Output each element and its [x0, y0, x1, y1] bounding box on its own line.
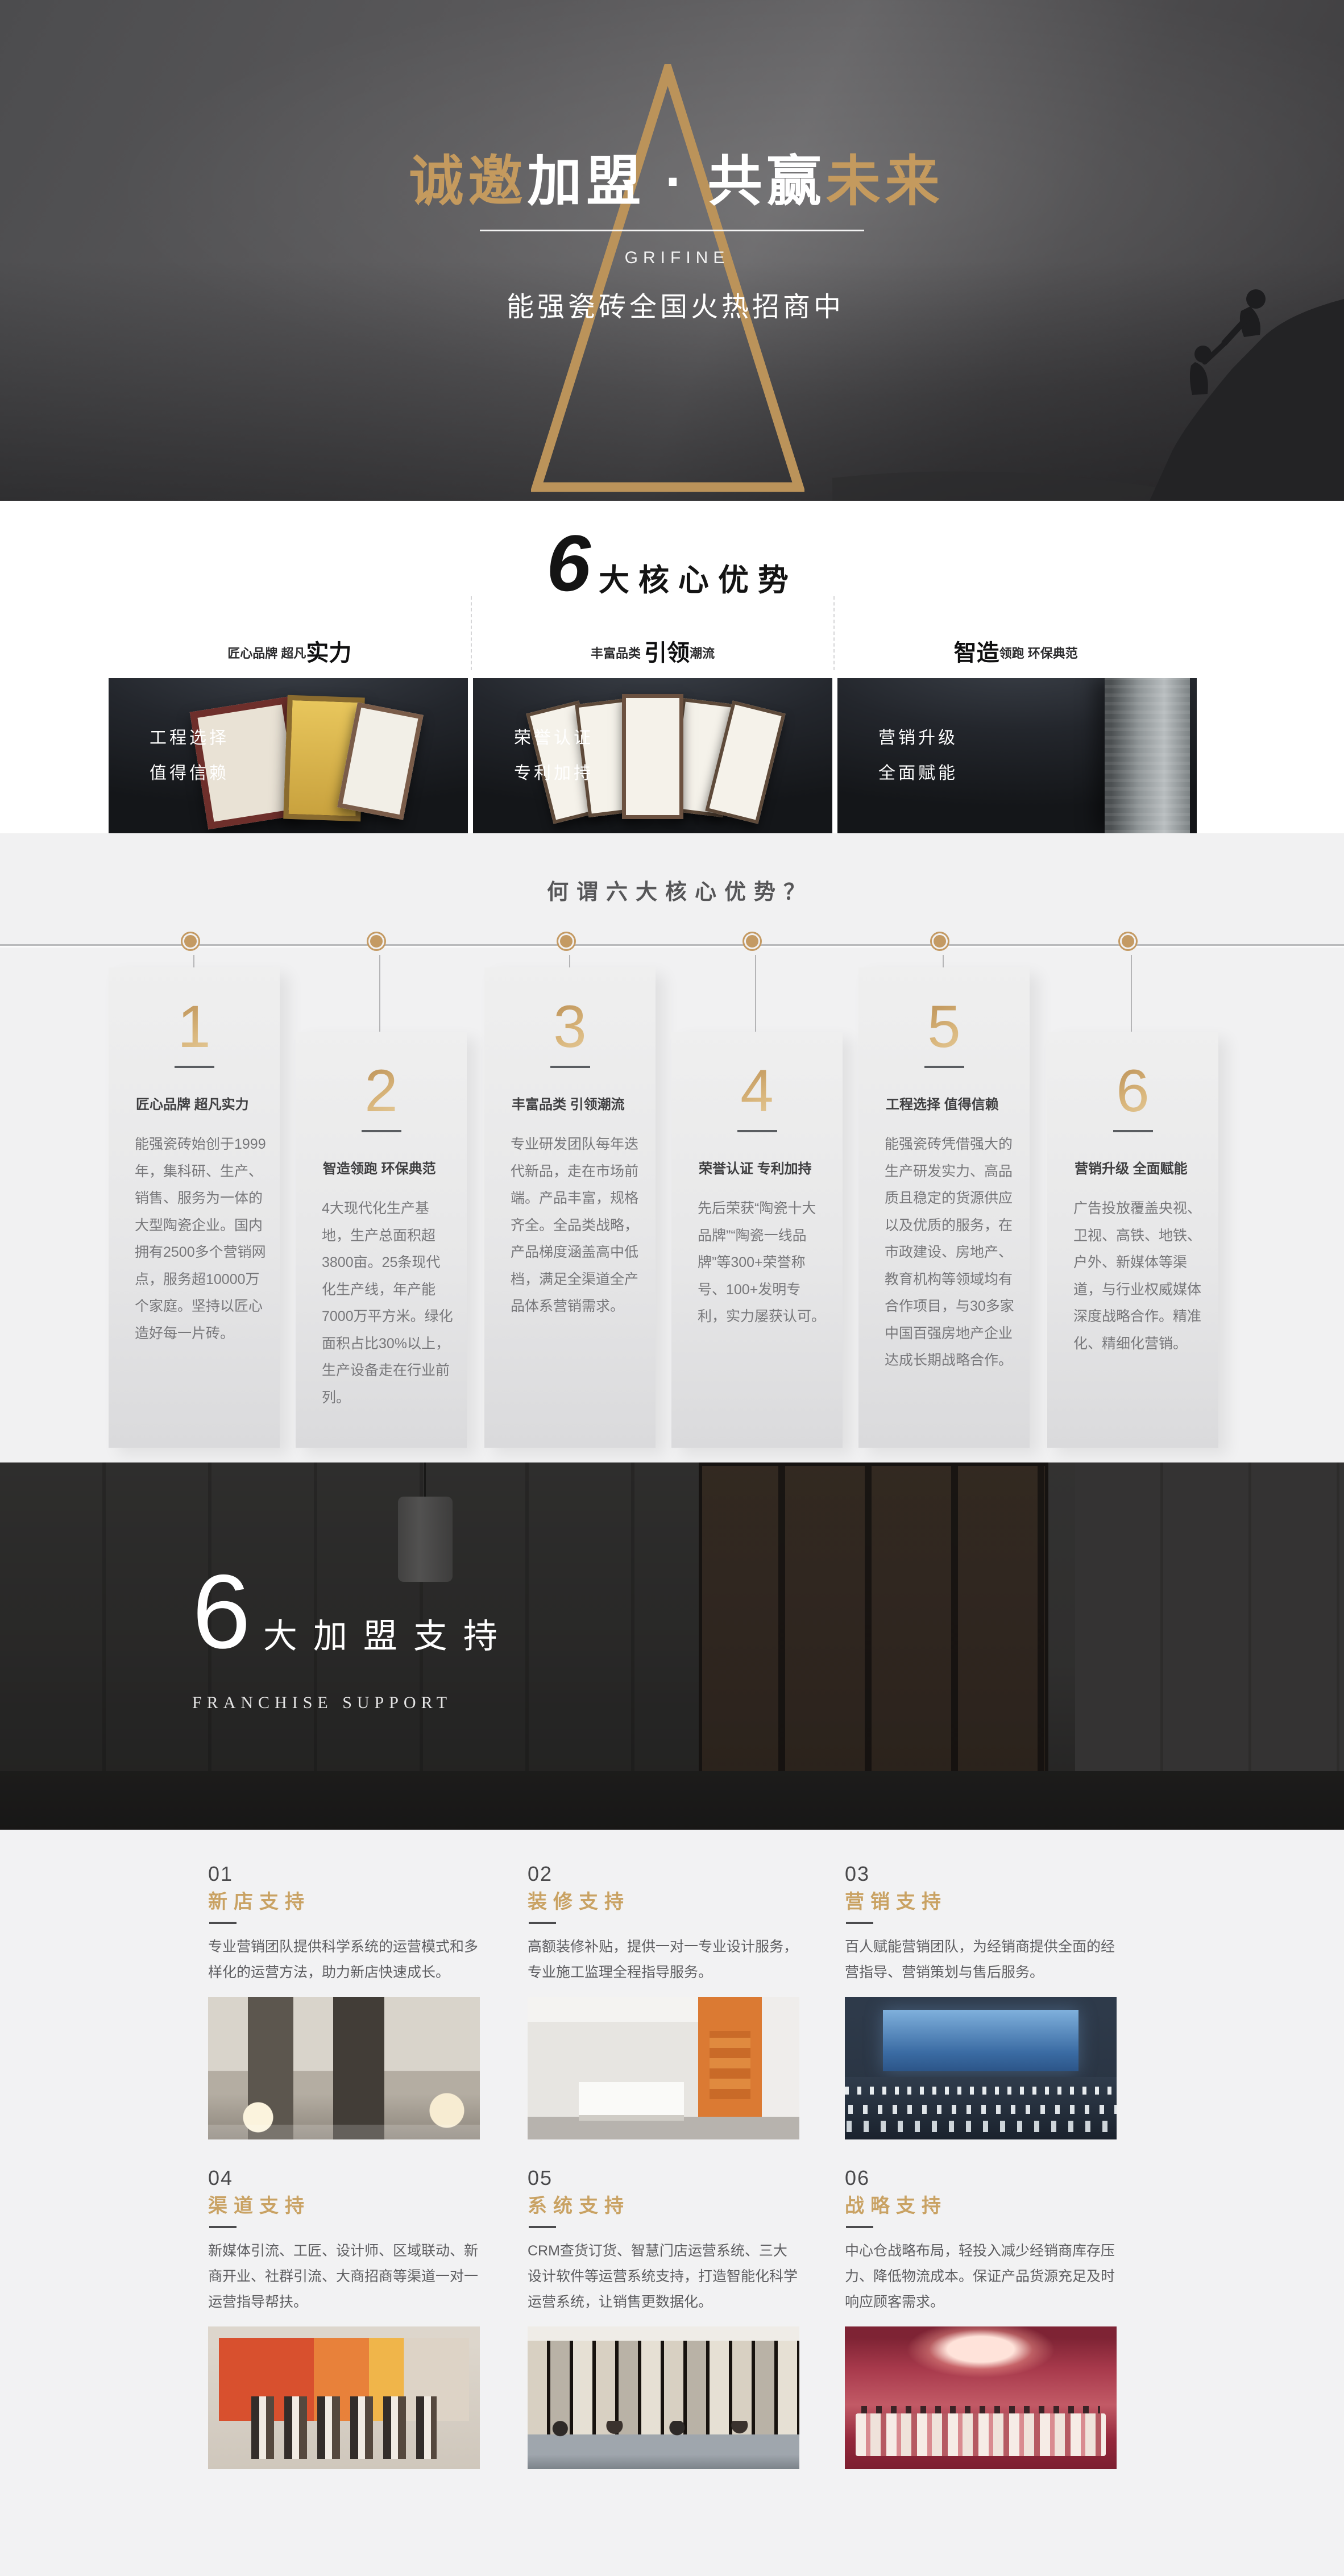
feature-text: 匠心品牌 超凡: [227, 643, 306, 664]
advantage-description: 先后荣获“陶瓷十大品牌”“陶瓷一线品牌”等300+荣誉称号、100+发明专利，实…: [698, 1195, 829, 1331]
franchise-text: 大加盟支持: [263, 1609, 513, 1658]
franchise-support-banner: 6 大加盟支持 FRANCHISE SUPPORT: [0, 1462, 1344, 1830]
franchise-landing-page: 诚邀加盟 · 共赢未来 GRIFINE 能强瓷砖全国火热招商中 6 大核心优势 …: [0, 0, 1344, 2576]
advantage-title: 营销升级 全面赋能: [1075, 1157, 1207, 1177]
core-heading: 6 大核心优势: [0, 523, 1344, 603]
feature-craft-brand: 匠心品牌 超凡实力: [109, 596, 471, 670]
support-number: 03: [845, 1864, 1118, 1884]
core-feature-row: 匠心品牌 超凡实力 丰富品类 引领潮流 智造领跑 环保典范: [109, 596, 1197, 670]
feature-text-big: 引领: [644, 642, 690, 664]
exhibition-event-photo: [208, 2326, 480, 2469]
timeline-dot: [560, 935, 573, 948]
support-grid-section: 01 新店支持 专业营销团队提供科学系统的运营模式和多样化的运营方法，助力新店快…: [0, 1830, 1344, 2576]
core-heading-text: 大核心优势: [599, 555, 798, 600]
hero-subtitle: 能强瓷砖全国火热招商中: [0, 284, 1344, 324]
hero-title-gold-left: 诚邀: [409, 151, 527, 212]
stone-slab-image: [1105, 678, 1190, 833]
timeline-dot: [184, 935, 197, 948]
core-advantages-section: 6 大核心优势 匠心品牌 超凡实力 丰富品类 引领潮流 智造领跑 环保典范 工程…: [0, 501, 1344, 833]
support-block-renovation: 02 装修支持 高额装修补贴，提供一对一专业设计服务，专业施工监理全程指导服务。: [528, 1864, 800, 2139]
conference-photo: [845, 1997, 1117, 2139]
feature-text: 潮流: [690, 643, 715, 664]
title-underline: [209, 1922, 237, 1924]
card-label-line2: 值得信赖: [150, 764, 229, 783]
mountain-climbers-photo: [832, 182, 1344, 501]
showroom-photo: [208, 1997, 480, 2139]
feature-smart-manufacturing: 智造领跑 环保典范: [833, 596, 1197, 670]
advantage-card-6: 6 营销升级 全面赋能 广告投放覆盖央视、卫视、高铁、地铁、户外、新媒体等渠道，…: [1047, 1032, 1218, 1448]
number-underline: [924, 1066, 964, 1068]
timeline-connector: [379, 955, 380, 1032]
advantage-card-3: 3 丰富品类 引领潮流 专业研发团队每年迭代新品，走在市场前端。产品丰富，规格齐…: [484, 967, 656, 1448]
support-title: 新店支持: [208, 1892, 481, 1912]
support-description: 中心仓战略布局，轻投入减少经销商库存压力、降低物流成本。保证产品货源充足及时响应…: [845, 2238, 1118, 2315]
support-title: 战略支持: [845, 2196, 1118, 2216]
number-underline: [1113, 1130, 1153, 1132]
support-title: 渠道支持: [208, 2196, 481, 2216]
number-underline: [362, 1130, 401, 1132]
franchise-number: 6: [192, 1563, 251, 1663]
advantage-number: 4: [671, 1061, 843, 1121]
title-underline: [846, 2226, 873, 2228]
advantage-card-4: 4 荣誉认证 专利加持 先后荣获“陶瓷十大品牌”“陶瓷一线品牌”等300+荣誉称…: [671, 1032, 843, 1448]
timeline-connector: [943, 955, 944, 967]
advantage-title: 荣誉认证 专利加持: [699, 1157, 831, 1177]
title-underline: [529, 2226, 556, 2228]
support-title: 营销支持: [845, 1892, 1118, 1912]
support-description: CRM查货订货、智慧门店运营系统、三大设计软件等运营系统支持，打造智能化科学运营…: [528, 2238, 800, 2315]
feature-text-big: 智造: [954, 642, 999, 664]
card-label-line1: 荣誉认证: [514, 729, 594, 747]
franchise-support-heading: 6 大加盟支持 FRANCHISE SUPPORT: [192, 1563, 513, 1713]
support-number: 06: [845, 2168, 1118, 2188]
support-description: 高额装修补贴，提供一对一专业设计服务，专业施工监理全程指导服务。: [528, 1934, 800, 1985]
card-marketing-upgrade: 营销升级全面赋能: [837, 678, 1197, 833]
hero-title: 诚邀加盟 · 共赢未来: [0, 147, 1344, 218]
number-underline: [175, 1066, 214, 1068]
support-block-channel: 04 渠道支持 新媒体引流、工匠、设计师、区域联动、新商开业、社群引流、大商招商…: [208, 2168, 481, 2469]
timeline-dot: [934, 935, 946, 948]
title-underline: [846, 1922, 873, 1924]
support-title: 系统支持: [528, 2196, 800, 2216]
feature-text-big: 实力: [306, 642, 351, 664]
support-block-new-store: 01 新店支持 专业营销团队提供科学系统的运营模式和多样化的运营方法，助力新店快…: [208, 1864, 481, 2139]
timeline-connector: [1131, 955, 1132, 1032]
timeline-line: [0, 944, 1344, 946]
card-label: 营销升级全面赋能: [878, 721, 958, 791]
support-description: 百人赋能营销团队，为经销商提供全面的经营指导、营销策划与售后服务。: [845, 1934, 1118, 1985]
card-label-line1: 工程选择: [150, 729, 229, 747]
tile-display-store-photo: [528, 2326, 799, 2469]
core-dark-cards: 工程选择值得信赖 荣誉认证专利加持 营销升级全面赋能: [109, 678, 1197, 833]
advantage-title: 智造领跑 环保典范: [323, 1157, 455, 1177]
office-reception-photo: [528, 1997, 799, 2139]
support-description: 新媒体引流、工匠、设计师、区域联动、新商开业、社群引流、大商招商等渠道一对一运营…: [208, 2238, 481, 2315]
card-label: 荣誉认证专利加持: [514, 721, 594, 791]
timeline-dot: [370, 935, 383, 948]
card-label-line2: 全面赋能: [878, 764, 958, 783]
advantage-description: 能强瓷砖始创于1999年，集科研、生产、销售、服务为一体的大型陶瓷企业。国内拥有…: [135, 1131, 266, 1347]
timeline-dot: [1122, 935, 1134, 948]
franchise-heading-row: 6 大加盟支持: [192, 1563, 513, 1663]
number-underline: [737, 1130, 777, 1132]
support-number: 04: [208, 2168, 481, 2188]
card-label-line2: 专利加持: [514, 764, 594, 783]
advantage-card-2: 2 智造领跑 环保典范 4大现代化生产基地，生产总面积超3800亩。25条现代化…: [296, 1032, 467, 1448]
advantages-heading: 何谓六大核心优势？: [0, 874, 1344, 905]
advantage-description: 广告投放覆盖央视、卫视、高铁、地铁、户外、新媒体等渠道，与行业权威媒体深度战略合…: [1073, 1195, 1205, 1357]
six-advantages-section: 何谓六大核心优势？ 1 匠心品牌 超凡实力 能强瓷砖始创于1999年，集科研、生…: [0, 833, 1344, 1462]
support-title: 装修支持: [528, 1892, 800, 1912]
advantage-description: 能强瓷砖凭借强大的生产研发实力、高品质且稳定的货源供应以及优质的服务，在市政建设…: [885, 1131, 1016, 1374]
franchise-subtitle: FRANCHISE SUPPORT: [192, 1693, 513, 1713]
advantage-title: 匠心品牌 超凡实力: [136, 1093, 268, 1113]
certificate-image: [622, 694, 683, 819]
card-label-line1: 营销升级: [878, 729, 958, 747]
feature-rich-category: 丰富品类 引领潮流: [471, 596, 834, 670]
advantage-card-5: 5 工程选择 值得信赖 能强瓷砖凭借强大的生产研发实力、高品质且稳定的货源供应以…: [858, 967, 1030, 1448]
number-underline: [550, 1066, 590, 1068]
core-heading-number: 6: [546, 523, 591, 603]
brand-triangle-icon: [531, 64, 804, 493]
support-number: 05: [528, 2168, 800, 2188]
stage-ceremony-photo: [845, 2326, 1117, 2469]
advantage-number: 6: [1047, 1061, 1218, 1121]
advantage-description: 专业研发团队每年迭代新品，走在市场前端。产品丰富，规格齐全。全品类战略，产品梯度…: [511, 1131, 642, 1320]
title-underline: [529, 1922, 556, 1924]
timeline-dot: [746, 935, 758, 948]
feature-text: 领跑 环保典范: [999, 643, 1078, 664]
hero-divider: [480, 230, 864, 231]
brand-name: GRIFINE: [0, 248, 1344, 268]
card-label: 工程选择值得信赖: [150, 721, 229, 791]
advantage-number: 2: [296, 1061, 467, 1121]
support-block-marketing: 03 营销支持 百人赋能营销团队，为经销商提供全面的经营指导、营销策划与售后服务…: [845, 1864, 1118, 2139]
timeline-connector: [755, 955, 756, 1032]
advantage-title: 工程选择 值得信赖: [886, 1093, 1018, 1113]
advantage-number: 3: [484, 997, 656, 1057]
timeline-connector: [569, 955, 570, 967]
advantage-description: 4大现代化生产基地，生产总面积超3800亩。25条现代化生产线，年产能7000万…: [322, 1195, 453, 1411]
hero-section: 诚邀加盟 · 共赢未来 GRIFINE 能强瓷砖全国火热招商中: [0, 0, 1344, 501]
support-block-strategy: 06 战略支持 中心仓战略布局，轻投入减少经销商库存压力、降低物流成本。保证产品…: [845, 2168, 1118, 2469]
advantage-card-1: 1 匠心品牌 超凡实力 能强瓷砖始创于1999年，集科研、生产、销售、服务为一体…: [109, 967, 280, 1448]
advantage-title: 丰富品类 引领潮流: [512, 1093, 644, 1113]
support-block-system: 05 系统支持 CRM查货订货、智慧门店运营系统、三大设计软件等运营系统支持，打…: [528, 2168, 800, 2469]
hero-title-gold-right: 未来: [826, 151, 944, 212]
support-description: 专业营销团队提供科学系统的运营模式和多样化的运营方法，助力新店快速成长。: [208, 1934, 481, 1985]
card-engineering-trust: 工程选择值得信赖: [109, 678, 468, 833]
support-number: 01: [208, 1864, 481, 1884]
advantage-number: 1: [109, 997, 280, 1057]
title-underline: [209, 2226, 237, 2228]
feature-text: 丰富品类: [591, 643, 644, 664]
card-honor-patent: 荣誉认证专利加持: [473, 678, 832, 833]
advantage-number: 5: [858, 997, 1030, 1057]
timeline-connector: [193, 955, 194, 967]
hero-title-white: 加盟 · 共赢: [527, 151, 826, 212]
support-number: 02: [528, 1864, 800, 1884]
